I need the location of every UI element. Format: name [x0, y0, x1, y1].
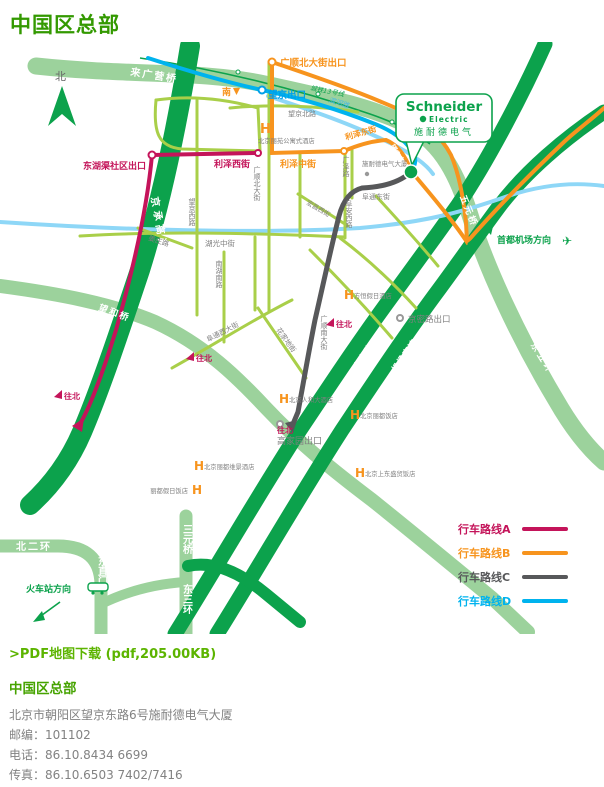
legend-line-route-c — [522, 575, 568, 579]
wangbei-arrow-icon — [54, 390, 62, 399]
railway-direction-label: 火车站方向 — [26, 583, 71, 595]
exit-label-donghuqu: 东湖渠社区出口 — [83, 160, 146, 172]
street-label-hongchang: 宏昌西街 — [305, 198, 332, 219]
junction-dot — [341, 148, 347, 154]
legend-row-b: 行车路线B — [458, 545, 568, 561]
building-dot — [365, 172, 369, 176]
road-label-beierhuan: 北二环 — [16, 540, 52, 553]
legend-row-c: 行车路线C — [458, 569, 568, 585]
contact-heading: 中国区总部 — [9, 677, 604, 697]
street-label-wangjingbei: 望京北路 — [288, 109, 316, 118]
exit-label-guangshun: 广顺北大街出口 — [280, 57, 347, 69]
page-header: 中国区总部 — [0, 0, 604, 42]
wangbei-marker-label: 往北 — [196, 353, 212, 363]
street-label-guangshunbei: 广顺北大街 — [253, 165, 261, 202]
south-arrow-icon — [233, 88, 240, 95]
legend-label-route-c: 行车路线C — [458, 569, 522, 585]
exit-dot-jingmilu — [397, 315, 403, 321]
contact-phone: 电话：86.10.8434 6699 — [9, 747, 604, 763]
street-label-futongdong: 阜通东街 — [362, 192, 390, 201]
compass-north-label: 北 — [55, 70, 66, 83]
hotel-marker-icon: H — [279, 392, 289, 406]
exit-label-jingmilu: 京密路出口 — [408, 314, 451, 325]
contact-address: 北京市朝阳区望京东路6号施耐德电气大厦 — [9, 707, 604, 723]
airplane-icon: ✈ — [562, 234, 572, 248]
railway-arrowhead — [33, 611, 45, 622]
road-label-dongsanhuan: 东三环 — [181, 583, 193, 615]
street-label-guangshunnan: 广顺南大街 — [320, 314, 328, 351]
north-arrow-icon — [48, 86, 76, 126]
legend-label-route-b: 行车路线B — [458, 545, 522, 561]
wangbei-marker-label: 往北 — [277, 425, 293, 435]
compass: 北 — [48, 70, 76, 126]
legend-row-a: 行车路线A — [458, 521, 568, 537]
road-label-dongzhimen: 东直门 — [96, 555, 108, 587]
contact-postcode: 邮编：101102 — [9, 727, 604, 743]
legend-row-d: 行车路线D — [458, 593, 568, 609]
route-legend: 行车路线A 行车路线B 行车路线C 行车路线D — [458, 521, 568, 617]
exit-label-wangjing: 望京出口 — [268, 89, 306, 101]
hotel-name: 北京丽都饭店 — [360, 411, 398, 420]
page-title: 中国区总部 — [10, 13, 120, 37]
pdf-download-link[interactable]: >PDF地图下载 (pdf,205.00KB) — [9, 643, 604, 662]
hotel-name: 方恒假日酒店 — [354, 291, 392, 300]
exit-dot-donghuqu — [149, 152, 156, 159]
hotel-name: 丽都假日饭店 — [150, 486, 188, 495]
hotel-marker-icon: H — [350, 408, 360, 422]
wangbei-marker-label: 往北 — [336, 319, 352, 329]
map: 来广营桥 京承高速 望和桥 四元桥 五元桥 东五环 北二环 东直门 三元桥 东三… — [0, 42, 604, 634]
hotel-name: 北京丽苑公寓式酒店 — [258, 136, 315, 145]
schneider-brand-cn-text: 施耐德电气 — [414, 126, 474, 138]
legend-line-route-d — [522, 599, 568, 603]
hotel-name: 北京人和大酒店 — [289, 395, 333, 404]
rail-station-dot — [236, 70, 240, 74]
exit-dot-guangshun — [269, 59, 276, 66]
schneider-logo-icon — [420, 116, 426, 122]
street-label-fuanxi: 阜安西路 — [345, 199, 353, 229]
rail-station-dot — [390, 120, 394, 124]
contact-fax: 传真：86.10.6503 7402/7416 — [9, 767, 604, 783]
wangbei-marker-label: 往北 — [64, 391, 80, 401]
hotel-marker-icon: H — [194, 459, 204, 473]
schneider-location-dot — [404, 165, 418, 179]
road-label-sanyuanqiao: 三元桥 — [181, 524, 193, 555]
junction-dot — [255, 150, 261, 156]
hotel-name: 北京上东盛贸饭店 — [365, 469, 415, 478]
legend-line-route-a — [522, 527, 568, 531]
hotel-marker-icon: H — [192, 483, 202, 497]
legend-label-route-a: 行车路线A — [458, 521, 522, 537]
street-label-lizexi: 利泽西街 — [213, 158, 250, 170]
building-label: 施耐德电气大厦 — [362, 159, 408, 168]
hotel-marker-icon: H — [344, 288, 354, 302]
hotel-marker-icon: H — [260, 122, 271, 137]
street-label-nanhunan: 南湖南路 — [215, 259, 223, 289]
street-label-wangjingxi: 望京西路 — [188, 197, 196, 227]
street-label-lizezhong: 利泽中街 — [279, 158, 316, 170]
schneider-brand-sub-text: Electric — [429, 115, 469, 124]
schneider-brand-text: Schneider — [406, 99, 483, 115]
street-label-huguangzhong: 湖光中街 — [205, 238, 235, 248]
legend-line-route-b — [522, 551, 568, 555]
direction-south-marker: 南 — [222, 86, 240, 98]
legend-label-route-d: 行车路线D — [458, 593, 522, 609]
road-label-siyuan: 四元桥 — [216, 393, 247, 421]
airport-direction-label: 首都机场方向 — [497, 234, 551, 246]
hotel-name: 北京丽都维景酒店 — [204, 462, 254, 471]
south-marker-label: 南 — [222, 86, 231, 98]
street-label-guangze: 广泽路 — [342, 155, 350, 178]
hotel-marker-icon: H — [355, 466, 365, 480]
exit-label-gaojiayuan: 高家园出口 — [277, 435, 322, 447]
exit-dot-wangjing — [259, 87, 266, 94]
